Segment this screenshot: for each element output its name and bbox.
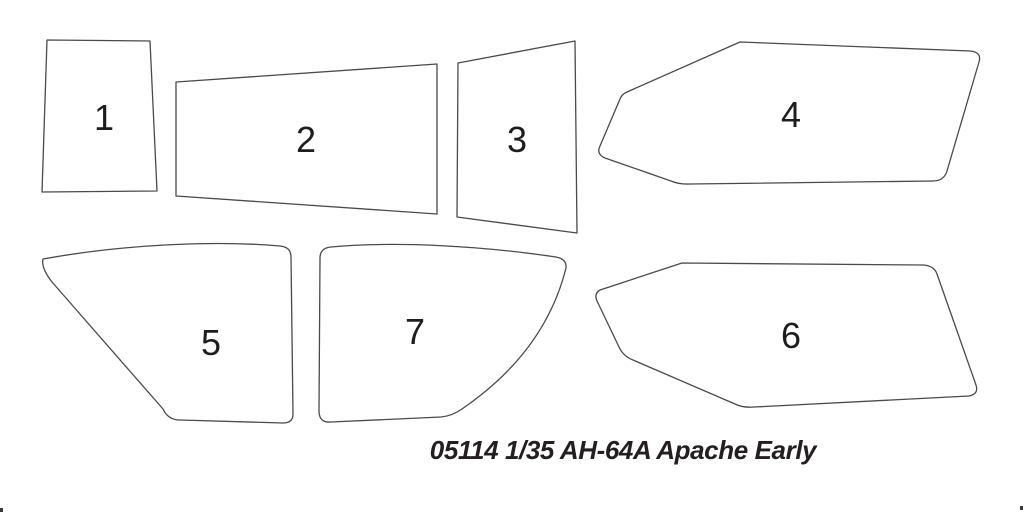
part-number-5: 5 <box>201 322 221 363</box>
kit-caption: 05114 1/35 AH-64A Apache Early <box>430 435 816 466</box>
part-number-3: 3 <box>507 119 527 160</box>
part-number-4: 4 <box>781 94 801 135</box>
part-number-1: 1 <box>94 97 114 138</box>
mask-parts-sheet: 1 2 3 4 5 6 7 05114 1/35 AH-64A Apache E… <box>0 0 1024 512</box>
scan-artifact-speck-right <box>1020 506 1023 510</box>
part-number-7: 7 <box>405 311 425 352</box>
part-outline-5 <box>43 244 293 423</box>
part-outline-7 <box>319 244 566 422</box>
part-number-6: 6 <box>781 315 801 356</box>
part-number-2: 2 <box>296 119 316 160</box>
scan-artifact-speck-left <box>0 508 3 512</box>
